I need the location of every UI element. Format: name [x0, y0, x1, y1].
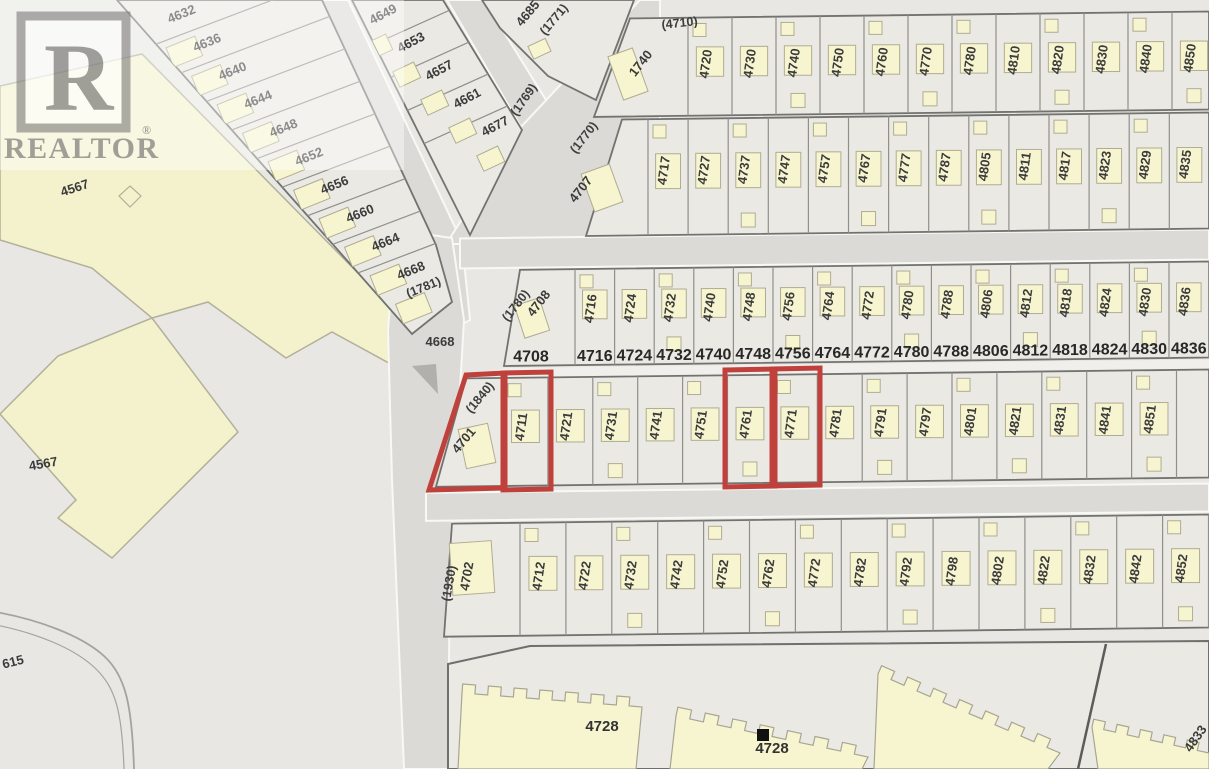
frontage-number-4772: 4772 [854, 345, 890, 362]
frontage-number-4764: 4764 [815, 345, 851, 362]
block-bottom [448, 641, 1209, 769]
frontage-number-4756: 4756 [775, 345, 811, 362]
frontage-number-4836: 4836 [1171, 341, 1207, 358]
parcel-map: 4632463646404644464846524656466046644668… [0, 0, 1209, 769]
frontage-number-4824: 4824 [1092, 342, 1128, 359]
frontage-number-4724: 4724 [617, 347, 653, 364]
frontage-number-4812: 4812 [1013, 343, 1049, 360]
corner-label-4668: 4668 [426, 334, 455, 349]
building-label-4728-east: 4728 [755, 740, 788, 757]
frontage-number-4806: 4806 [973, 343, 1009, 360]
frontage-number-4732: 4732 [656, 347, 692, 364]
frontage-number-4780: 4780 [894, 344, 930, 361]
frontage-number-4740: 4740 [696, 346, 732, 363]
frontage-number-4716: 4716 [577, 348, 613, 365]
realtor-logo-r-icon: R [44, 24, 115, 131]
frontage-number-4818: 4818 [1052, 342, 1088, 359]
realtor-logo-text: REALTOR [4, 132, 160, 165]
realtor-watermark: RREALTOR® [0, 0, 404, 170]
frontage-number-4788: 4788 [933, 344, 969, 361]
frontage-number-4830: 4830 [1131, 341, 1167, 358]
frontage-number-4748: 4748 [735, 346, 771, 363]
map-canvas[interactable]: 4632463646404644464846524656466046644668… [0, 0, 1209, 769]
registered-mark-icon: ® [142, 123, 151, 137]
building-label-4728-west: 4728 [585, 718, 618, 735]
frontage-number-4708: 4708 [513, 349, 549, 366]
